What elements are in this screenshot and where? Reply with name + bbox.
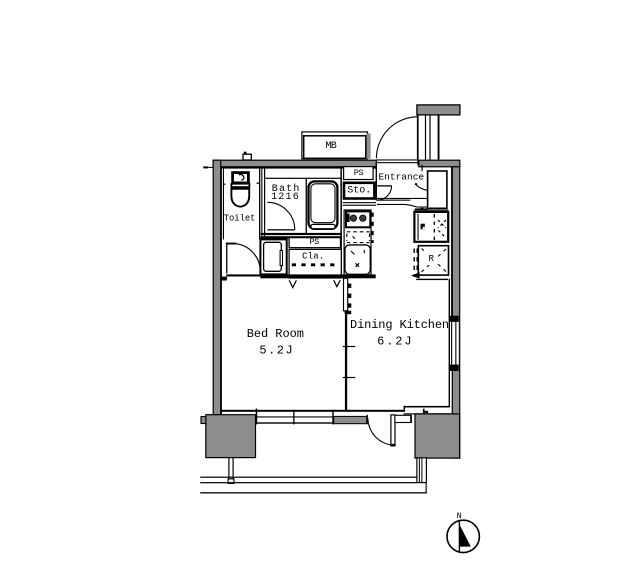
svg-text:N: N	[457, 511, 462, 521]
svg-text:Cla.: Cla.	[302, 252, 324, 262]
svg-text:R: R	[428, 254, 434, 264]
svg-text:Toilet: Toilet	[224, 213, 256, 223]
svg-text:MB: MB	[325, 141, 336, 152]
svg-text:6.2J: 6.2J	[377, 334, 413, 348]
svg-text:PS: PS	[354, 168, 364, 178]
svg-text:1216: 1216	[271, 192, 300, 203]
svg-text:PS: PS	[309, 237, 319, 247]
svg-text:5.2J: 5.2J	[259, 344, 294, 358]
svg-text:Dining Kitchen: Dining Kitchen	[350, 318, 449, 332]
svg-text:Bed Room: Bed Room	[247, 327, 304, 341]
svg-text:Entrance: Entrance	[378, 171, 424, 182]
svg-text:Sto.: Sto.	[347, 186, 371, 197]
